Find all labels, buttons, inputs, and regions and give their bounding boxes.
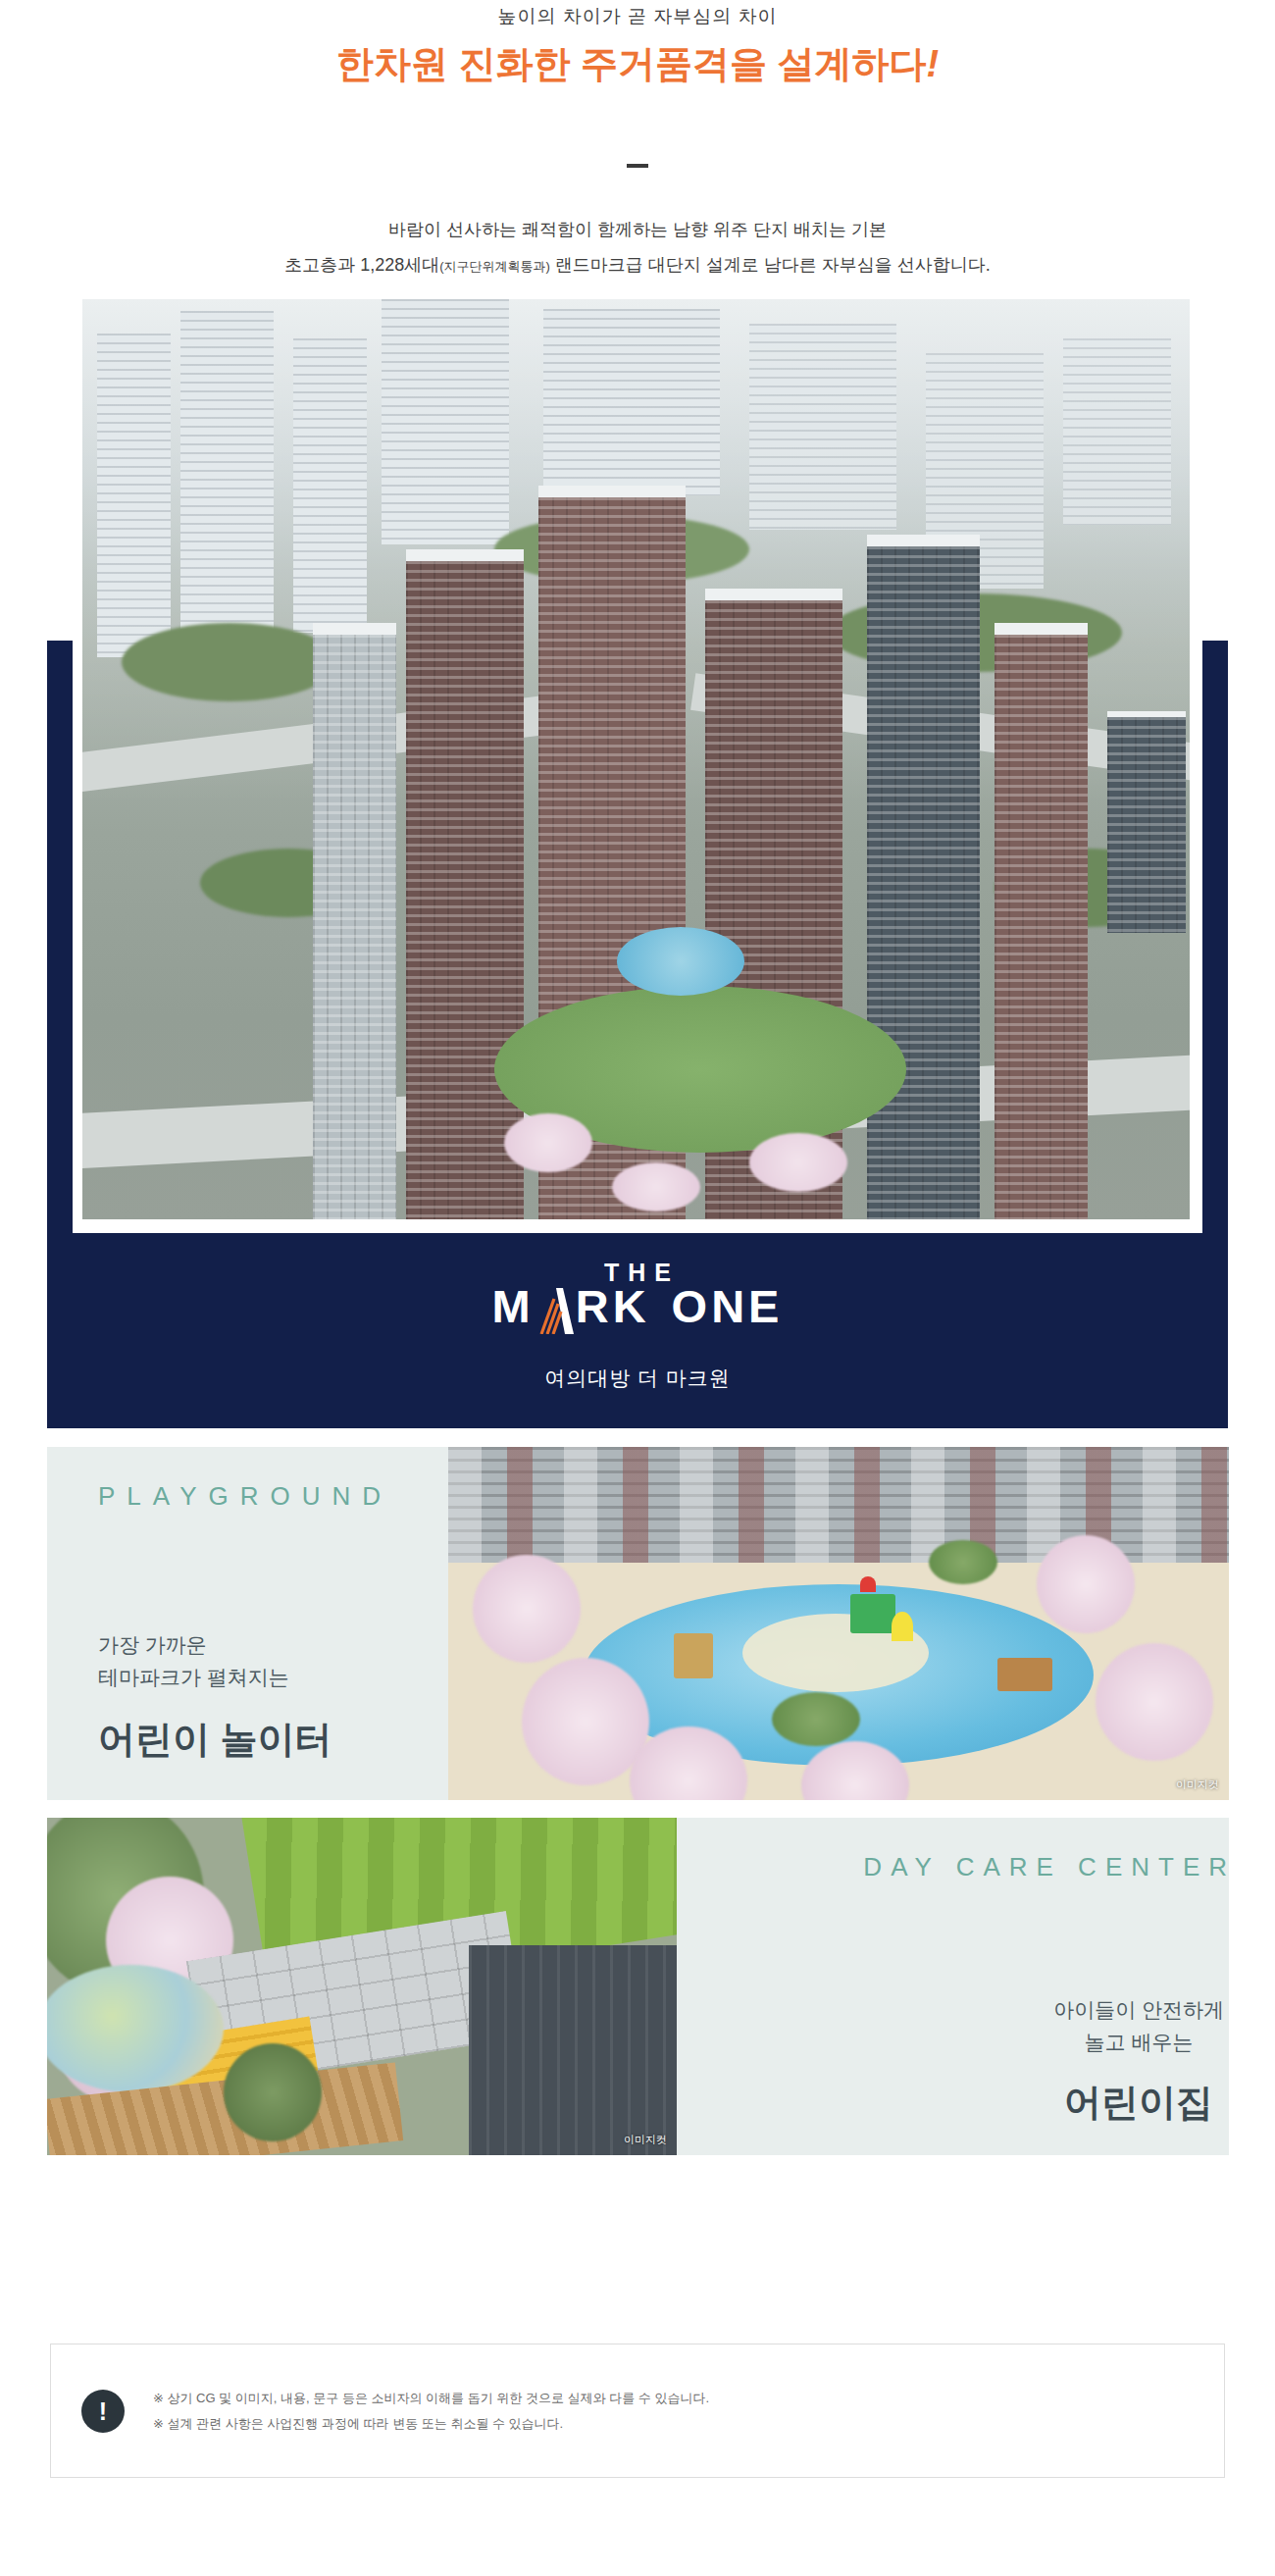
logo-letters-rk: RK — [576, 1279, 650, 1333]
daycare-tree — [224, 2043, 322, 2141]
playground-blossom-tree — [1037, 1535, 1135, 1633]
disclaimer-line-1: ※ 상기 CG 및 이미지, 내용, 문구 등은 소비자의 이해를 돕기 위한 … — [153, 2391, 709, 2405]
intro-line-2-rest: 랜드마크급 대단지 설계로 남다른 자부심을 선사합니다. — [550, 255, 991, 275]
hero-bg-slab — [382, 299, 509, 544]
logo-subtitle: 여의대방 더 마크원 — [47, 1365, 1228, 1392]
playground-bush — [772, 1692, 860, 1746]
intro-line-1: 바람이 선사하는 쾌적함이 함께하는 남향 위주 단지 배치는 기본 — [388, 220, 887, 239]
hero-blossom — [612, 1162, 700, 1211]
hero-bg-slab — [1063, 338, 1171, 525]
playground-label: PLAYGROUND — [98, 1481, 392, 1512]
playground-title: 어린이 놀이터 — [98, 1715, 332, 1765]
logo-a-glyph — [538, 1287, 574, 1334]
hero-trees — [122, 623, 337, 701]
frame-bar-right — [1202, 641, 1228, 1233]
playground-bush — [929, 1540, 997, 1584]
daycare-sub-line-1: 아이들이 안전하게 — [1053, 1998, 1224, 2021]
playground-sub-line-2: 테마파크가 펼쳐지는 — [98, 1666, 289, 1688]
page-title-exclamation: ! — [927, 43, 940, 84]
daycare-sub-line-2: 놀고 배우는 — [1085, 2031, 1194, 2053]
playground-equipment — [850, 1594, 895, 1633]
daycare-title: 어린이집 — [1053, 2078, 1224, 2128]
intro-paragraph: 바람이 선사하는 쾌적함이 함께하는 남향 위주 단지 배치는 기본 초고층과 … — [0, 212, 1275, 284]
playground-blossom-tree — [522, 1658, 649, 1785]
hero-blossom — [504, 1113, 592, 1172]
title-divider — [627, 164, 648, 168]
playground-pavilion — [997, 1658, 1052, 1691]
hero-bg-slab — [749, 324, 896, 530]
exclamation-icon: ! — [81, 2390, 125, 2433]
playground-wood-structure — [674, 1633, 713, 1678]
hero-tower — [994, 623, 1088, 1219]
logo-markone: M RK ONE — [47, 1282, 1228, 1333]
playground-slide — [892, 1612, 913, 1641]
header-eyebrow: 높이의 차이가 곧 자부심의 차이 — [0, 4, 1275, 29]
hero-pond — [617, 927, 744, 996]
playground-image-caption: 이미지컷 — [1176, 1777, 1219, 1792]
playground-subtitle: 가장 가까운 테마파크가 펼쳐지는 — [98, 1628, 289, 1693]
playground-image: 이미지컷 — [448, 1447, 1229, 1800]
frame-bar-left — [47, 641, 73, 1233]
intro-line-2: 초고층과 1,228세대 — [284, 255, 439, 275]
playground-blossom-tree — [1096, 1643, 1213, 1761]
intro-line-2-note: (지구단위계획통과) — [439, 259, 550, 274]
hero-aerial-image — [82, 299, 1190, 1219]
promo-page: 높이의 차이가 곧 자부심의 차이 한차원 진화한 주거품격을 설계하다! 바람… — [0, 0, 1275, 2576]
playground-sub-line-1: 가장 가까운 — [98, 1633, 207, 1656]
daycare-subtitle: 아이들이 안전하게 놀고 배우는 — [1053, 1993, 1224, 2058]
logo-letter-m: M — [492, 1279, 535, 1333]
daycare-label: DAY CARE CENTER — [863, 1852, 1236, 1882]
playground-roof — [860, 1576, 876, 1592]
logo-word-one: ONE — [672, 1279, 784, 1333]
playground-blossom-tree — [473, 1555, 581, 1663]
daycare-image-caption: 이미지컷 — [624, 2133, 667, 2147]
daycare-dark-facade — [469, 1945, 677, 2155]
hero-tower — [313, 623, 396, 1219]
hero-office — [1107, 711, 1186, 933]
hero-bg-slab — [293, 338, 367, 633]
hero-tower — [867, 535, 980, 1219]
brand-band: THE M RK ONE 여의대방 더 마크원 — [47, 1233, 1228, 1428]
page-title: 한차원 진화한 주거품격을 설계하다! — [0, 39, 1275, 89]
daycare-text-block: 아이들이 안전하게 놀고 배우는 어린이집 — [1053, 1993, 1224, 2128]
disclaimer-box: ! ※ 상기 CG 및 이미지, 내용, 문구 등은 소비자의 이해를 돕기 위… — [50, 2344, 1225, 2478]
hero-blossom — [749, 1133, 847, 1192]
hero-bg-slab — [543, 309, 720, 495]
disclaimer-line-2: ※ 설계 관련 사항은 사업진행 과정에 따라 변동 또는 취소될 수 있습니다… — [153, 2416, 563, 2431]
hero-tower — [406, 549, 524, 1219]
daycare-image: 이미지컷 — [47, 1818, 677, 2155]
hero-bg-slab — [97, 334, 171, 657]
disclaimer-text: ※ 상기 CG 및 이미지, 내용, 문구 등은 소비자의 이해를 돕기 위한 … — [153, 2386, 709, 2437]
page-title-text: 한차원 진화한 주거품격을 설계하다 — [336, 43, 927, 84]
